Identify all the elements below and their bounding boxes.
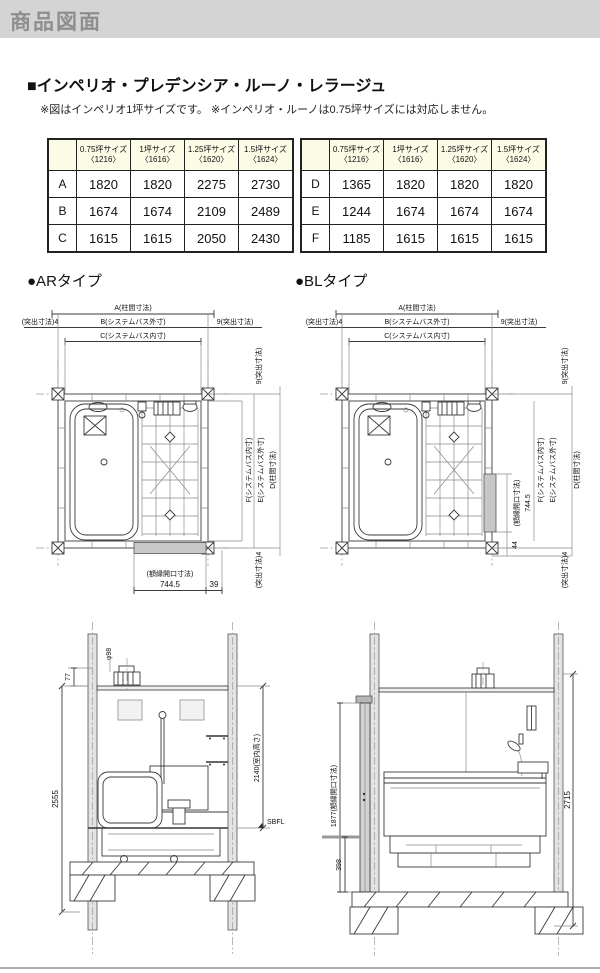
dim-protrude4-right: (突出寸法)4 [254,552,263,589]
dim-77: 77 [65,673,72,681]
dim-protrude4-right: (突出寸法)4 [560,552,569,589]
dim-b-label: B(システムバス外寸) [384,317,449,326]
value-cell: 1674 [492,198,547,225]
series-title: ■インペリオ・プレデンシア・ルーノ・レラージュ [27,72,386,96]
col-header: 0.75坪サイズ〈1216〉 [77,139,131,171]
door-opening-ar [134,543,206,554]
dim-protrude9-right: 9(突出寸法) [254,348,263,385]
row-label: E [301,198,330,225]
col-header: 1.25坪サイズ〈1620〉 [185,139,239,171]
dim-protrude9-right: 9(突出寸法) [560,348,569,385]
shelves [206,736,228,762]
dim-a-label: A(柱間寸法) [398,303,435,312]
value-cell: 1674 [77,198,131,225]
dim-c-label: C(システムバス内寸) [384,331,450,340]
ar-floor-and-foundation [70,828,255,901]
bl-type-heading: ●BLタイプ [295,270,367,291]
value-cell: 2730 [239,171,294,198]
value-cell: 1674 [131,198,185,225]
dim-39: 39 [210,580,219,589]
frame-opening-label: (額縁開口寸法) [147,569,194,578]
dim-d-label: D(柱間寸法) [572,451,581,489]
ar-elevation-drawing: φ98 77 2555 [22,616,298,968]
shower-rail [159,712,166,719]
dim-2715: 2715 [563,791,572,809]
value-cell: 2050 [185,225,239,253]
table-row: E 1244 1674 1674 1674 [301,198,546,225]
row-label: C [48,225,77,253]
series-note: ※図はインペリオ1坪サイズです。 ※インペリオ・ルーノは0.75坪サイズには対応… [40,101,493,117]
row-label: D [301,171,330,198]
frame-opening-value: 744.5 [160,580,181,589]
size-table-abc: 0.75坪サイズ〈1216〉 1坪サイズ〈1616〉 1.25坪サイズ〈1620… [47,138,294,253]
bathtub-side [384,762,548,836]
value-cell: 2275 [185,171,239,198]
dim-44: 44 [512,541,519,549]
dim-b-label: B(システムバス外寸) [100,317,165,326]
col-header: 1.5坪サイズ〈1624〉 [239,139,294,171]
room-height-label: 2140(室内高さ) [252,734,261,782]
dim-2555: 2555 [51,790,60,808]
dim-d-label: D(柱間寸法) [268,451,277,489]
dim-398: 398 [336,859,343,871]
value-cell: 1615 [492,225,547,253]
table-row: A 1820 1820 2275 2730 [48,171,293,198]
frame-opening-label-bl: (額縁開口寸法) [512,480,521,527]
dim-f-label: F(システムバス内寸) [244,438,253,503]
size-table-def-header-row: 0.75坪サイズ〈1216〉 1坪サイズ〈1616〉 1.25坪サイズ〈1620… [301,139,546,171]
dim-protrude9-label: 9(突出寸法) [217,317,254,326]
dim-f-label: F(システムバス内寸) [536,438,545,503]
door-opening-bl [484,474,496,532]
col-header: 0.75坪サイズ〈1216〉 [330,139,384,171]
page-header-title: 商品図面 [0,0,102,36]
value-cell: 1615 [438,225,492,253]
door-panel [356,696,372,892]
frame-1877-label: 1877(額縁開口寸法) [329,765,338,827]
bathtub-front [98,772,162,828]
dim-1877: 1877(額縁開口寸法) [329,703,360,892]
value-cell: 1615 [131,225,185,253]
ar-type-heading: ●ARタイプ [27,270,102,291]
bathtub-plan [70,404,138,540]
col-header: 1.5坪サイズ〈1624〉 [492,139,547,171]
value-cell: 1820 [438,171,492,198]
value-cell: 1674 [438,198,492,225]
value-cell: 1820 [77,171,131,198]
sbfl-label: SBFL [267,819,285,826]
col-header: 1坪サイズ〈1616〉 [131,139,185,171]
value-cell: 1615 [384,225,438,253]
dim-protrude9-label: 9(突出寸法) [501,317,538,326]
value-cell: 1820 [131,171,185,198]
dim-protrude4-label: (突出寸法)4 [22,317,58,326]
row-label: A [48,171,77,198]
value-cell: 2430 [239,225,294,253]
col-header: 1坪サイズ〈1616〉 [384,139,438,171]
ceiling-and-fan [97,658,228,690]
bl-elevation-drawing: 1877(額縁開口寸法) [306,616,594,968]
value-cell: 2489 [239,198,294,225]
value-cell: 1820 [492,171,547,198]
bl-plan-right-dimensions: (額縁開口寸法) 744.5 44 9(突出寸法) F(システムバス内寸) E(… [492,348,581,589]
dim-398: 398 [336,837,348,892]
col-header: 1.25坪サイズ〈1620〉 [438,139,492,171]
row-label: B [48,198,77,225]
ar-plan-bottom-dimensions: (額縁開口寸法) 744.5 39 [134,550,222,594]
value-cell: 1185 [330,225,384,253]
table-row: C 1615 1615 2050 2430 [48,225,293,253]
page-bottom-rule [0,967,600,969]
size-table-def: 0.75坪サイズ〈1216〉 1坪サイズ〈1616〉 1.25坪サイズ〈1620… [300,138,547,253]
dim-c-label: C(システムバス内寸) [100,331,166,340]
table-row: B 1674 1674 2109 2489 [48,198,293,225]
ar-plan-drawing: A(柱間寸法) (突出寸法)4 B(システムバス外寸) 9(突出寸法) C(シス… [22,298,298,612]
row-label: F [301,225,330,253]
corner-cell [48,139,77,171]
value-cell: 1244 [330,198,384,225]
dim-e-label: E(システムバス外寸) [548,437,557,502]
size-table-abc-header-row: 0.75坪サイズ〈1216〉 1坪サイズ〈1616〉 1.25坪サイズ〈1620… [48,139,293,171]
value-cell: 1615 [77,225,131,253]
bl-plan-drawing: A(柱間寸法) (突出寸法)4 B(システムバス外寸) 9(突出寸法) C(シス… [306,298,594,612]
table-row: D 1365 1820 1820 1820 [301,171,546,198]
dim-2140-and-sbfl: 2140(室内高さ) SBFL [237,683,285,831]
frame-opening-value-bl: 744.5 [525,494,532,512]
dim-protrude4-label: (突出寸法)4 [306,317,342,326]
value-cell: 1820 [384,171,438,198]
product-drawing-page: 商品図面 ■インペリオ・プレデンシア・ルーノ・レラージュ ※図はインペリオ1坪サ… [0,0,600,973]
value-cell: 1674 [384,198,438,225]
fan-diameter-label: φ98 [106,648,113,660]
value-cell: 2109 [185,198,239,225]
ar-plan-right-dimensions: 9(突出寸法) F(システムバス内寸) E(システムバス外寸) D(柱間寸法) … [208,348,280,589]
corner-cell [301,139,330,171]
washbasin [168,800,190,808]
dim-a-label: A(柱間寸法) [114,303,151,312]
value-cell: 1365 [330,171,384,198]
page-header-band: 商品図面 [0,0,600,38]
table-row: F 1185 1615 1615 1615 [301,225,546,253]
dim-e-label: E(システムバス外寸) [256,437,265,502]
ar-interior [98,700,228,828]
